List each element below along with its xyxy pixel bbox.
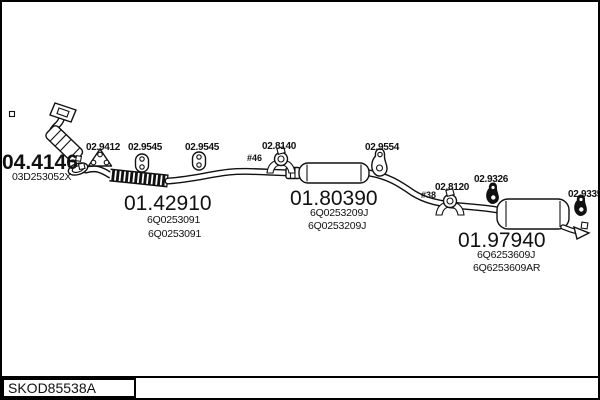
rear-silencer-body [497,199,569,229]
pear-hanger-icon [372,149,387,176]
part-ref-front-pipe: 01.42910 [124,192,212,215]
mounting-label-clamp: 02.8140 [262,141,297,152]
clamp-size-label: #46 [247,153,262,163]
square-marker [78,163,85,170]
oe-code-front-pipe: 6Q0253091 [147,214,200,226]
cat-top-flange [50,103,76,122]
clamp-size-label: #38 [421,190,436,200]
mounting-label-hanger: 02.9335 [568,189,600,200]
rubber-hanger-icon [193,152,206,170]
oe-code-rear-silencer: 6Q6253609J [477,249,535,261]
oe-code-rear-silencer: 6Q6253609AR [473,262,541,274]
oe-code-centre-silencer: 6Q0253209J [310,207,368,219]
mounting-label-bracket: 02.9412 [86,142,121,153]
mounting-label-clamp: 02.8120 [435,182,470,193]
centre-silencer-body [299,163,369,183]
small-hanger-icon [487,183,499,203]
mounting-label-hanger: 02.9545 [128,142,163,153]
oe-code-centre-silencer: 6Q0253209J [308,220,366,232]
oe-code-catalyst: 03D253052X [12,171,71,183]
rubber-hanger-icon [136,154,149,172]
drawing-code: SKOD85538A [8,380,96,396]
exhaust-system-diagram: 04.4146 03D253052X 02.9412 02.9545 02.95… [0,0,600,376]
centre-silencer-drawing [286,163,369,183]
drawing-code-box: SKOD85538A [2,378,136,398]
square-marker [10,112,15,117]
mounting-label-hanger: 02.9326 [474,174,509,185]
mounting-label-hanger: 02.9545 [185,142,220,153]
oe-code-front-pipe: 6Q0253091 [148,228,201,240]
flex-pipe-section [110,175,168,181]
mounting-label-hanger: 02.9554 [365,142,400,153]
